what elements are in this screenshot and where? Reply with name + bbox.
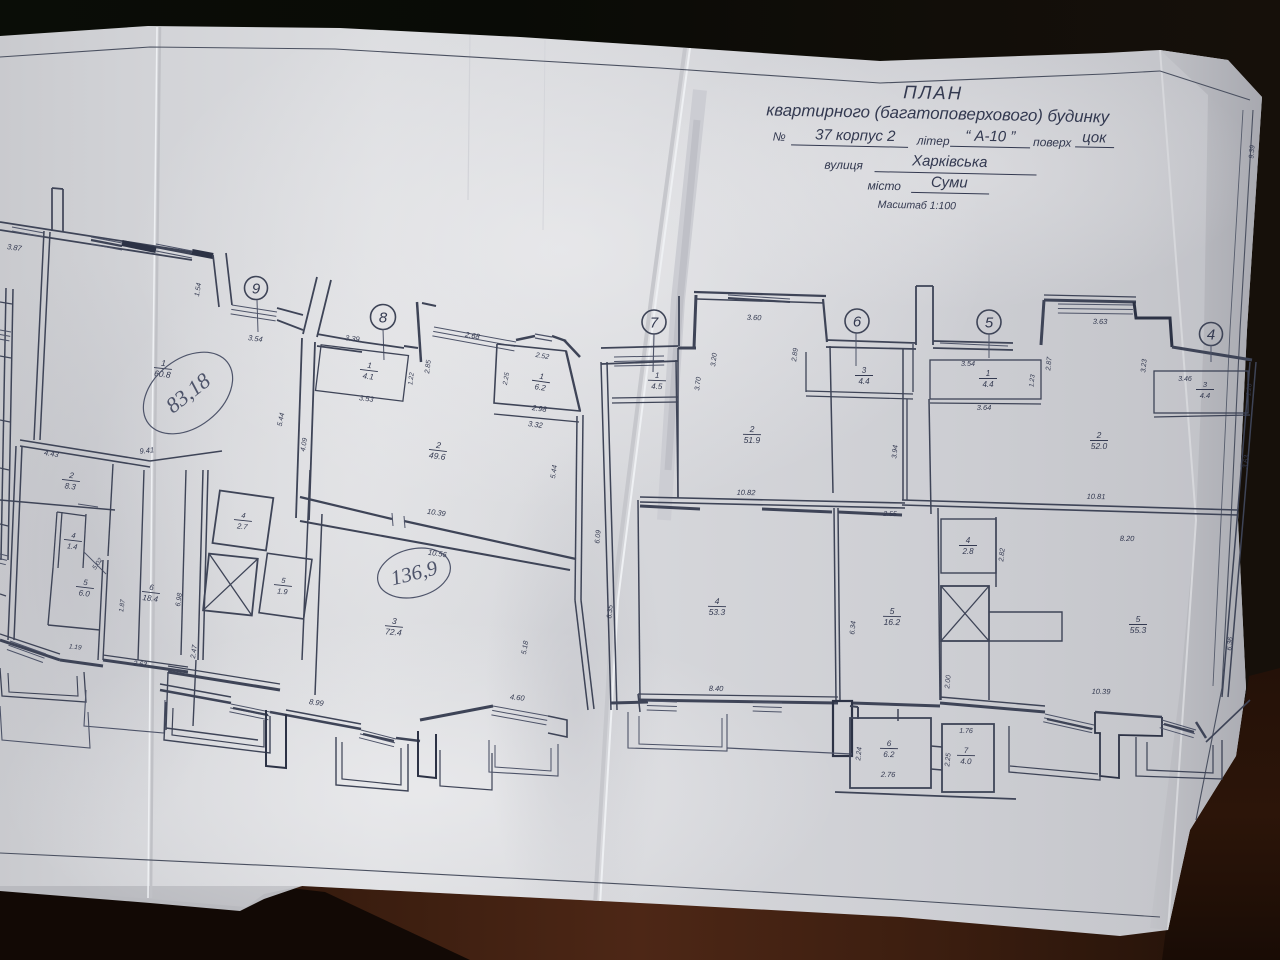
svg-text:6.35: 6.35	[606, 605, 614, 619]
svg-text:“ А-10 ”: “ А-10 ”	[965, 128, 1016, 146]
svg-text:1.23: 1.23	[1028, 374, 1036, 388]
svg-text:10.81: 10.81	[1087, 492, 1106, 501]
svg-text:3.64: 3.64	[977, 403, 992, 412]
svg-text:1.76: 1.76	[959, 728, 973, 735]
svg-text:6: 6	[887, 739, 892, 748]
svg-text:2.76: 2.76	[880, 770, 897, 779]
svg-text:1.4: 1.4	[66, 541, 77, 551]
svg-text:ПЛАН: ПЛАН	[903, 81, 963, 103]
svg-text:6.36: 6.36	[1226, 637, 1234, 651]
svg-text:поверх: поверх	[1033, 135, 1073, 150]
svg-text:9.39: 9.39	[1248, 145, 1256, 159]
svg-text:8.3: 8.3	[64, 481, 77, 491]
svg-text:Харківська: Харківська	[911, 152, 988, 171]
svg-text:2.7: 2.7	[236, 521, 249, 531]
svg-text:3.53: 3.53	[359, 393, 375, 404]
svg-text:4.4: 4.4	[982, 380, 994, 389]
svg-text:3.54: 3.54	[961, 359, 975, 368]
svg-text:Масштаб 1:100: Масштаб 1:100	[878, 199, 957, 213]
svg-text:4.5: 4.5	[651, 382, 663, 391]
svg-text:16.2: 16.2	[884, 617, 901, 627]
svg-text:9.41: 9.41	[139, 445, 154, 455]
svg-text:49.6: 49.6	[428, 450, 446, 462]
svg-text:2: 2	[1096, 430, 1102, 440]
svg-text:1: 1	[986, 369, 990, 378]
svg-text:37 корпус 2: 37 корпус 2	[815, 126, 896, 145]
svg-text:5: 5	[985, 315, 994, 332]
svg-text:2.8: 2.8	[961, 547, 974, 556]
svg-text:3.46: 3.46	[1178, 376, 1192, 383]
svg-text:10.39: 10.39	[1092, 687, 1112, 696]
svg-text:1.19: 1.19	[68, 643, 82, 651]
svg-text:4.60: 4.60	[510, 692, 526, 703]
svg-text:55.3: 55.3	[1130, 625, 1147, 635]
svg-text:2.63: 2.63	[132, 660, 147, 668]
svg-text:6: 6	[853, 314, 862, 331]
svg-text:6.2: 6.2	[883, 750, 895, 759]
svg-text:цок: цок	[1082, 129, 1107, 147]
svg-text:5: 5	[890, 606, 895, 616]
svg-text:3.23: 3.23	[1140, 359, 1148, 373]
svg-text:3.94: 3.94	[891, 445, 899, 459]
svg-text:3.63: 3.63	[1093, 317, 1109, 326]
svg-text:3.63: 3.63	[1242, 455, 1250, 469]
svg-text:1: 1	[655, 371, 660, 380]
svg-text:3.39: 3.39	[345, 333, 361, 344]
svg-text:4: 4	[966, 536, 971, 545]
svg-text:7: 7	[964, 746, 969, 755]
svg-text:6.09: 6.09	[594, 530, 602, 544]
svg-text:4: 4	[715, 596, 720, 606]
svg-text:7: 7	[650, 315, 659, 332]
svg-text:3.60: 3.60	[747, 313, 763, 323]
svg-text:8.40: 8.40	[709, 684, 725, 693]
svg-text:Суми: Суми	[931, 174, 969, 192]
svg-text:літер: літер	[916, 133, 950, 148]
svg-text:4.1: 4.1	[362, 371, 374, 381]
svg-text:4.4: 4.4	[858, 377, 870, 386]
svg-text:вулиця: вулиця	[824, 158, 863, 173]
svg-text:2.55: 2.55	[882, 511, 897, 518]
svg-text:8.20: 8.20	[1120, 534, 1136, 543]
svg-text:9: 9	[252, 281, 261, 298]
svg-text:51.9: 51.9	[744, 435, 761, 445]
svg-text:3: 3	[862, 366, 867, 375]
svg-text:6.34: 6.34	[849, 621, 857, 635]
svg-text:місто: місто	[867, 178, 901, 193]
svg-text:52.0: 52.0	[1091, 441, 1108, 451]
svg-text:8: 8	[379, 310, 388, 327]
svg-text:6.2: 6.2	[534, 382, 547, 393]
svg-text:№: №	[773, 129, 786, 143]
svg-text:53.3: 53.3	[709, 607, 726, 617]
svg-text:6.0: 6.0	[78, 588, 91, 598]
svg-text:4.0: 4.0	[960, 757, 972, 766]
svg-text:1.9: 1.9	[277, 586, 289, 596]
svg-text:5: 5	[1136, 614, 1141, 624]
svg-text:4: 4	[1207, 327, 1215, 344]
svg-text:72.4: 72.4	[385, 626, 403, 637]
svg-text:2: 2	[749, 424, 755, 434]
svg-text:10.82: 10.82	[737, 488, 757, 497]
svg-text:4.4: 4.4	[1200, 391, 1210, 400]
